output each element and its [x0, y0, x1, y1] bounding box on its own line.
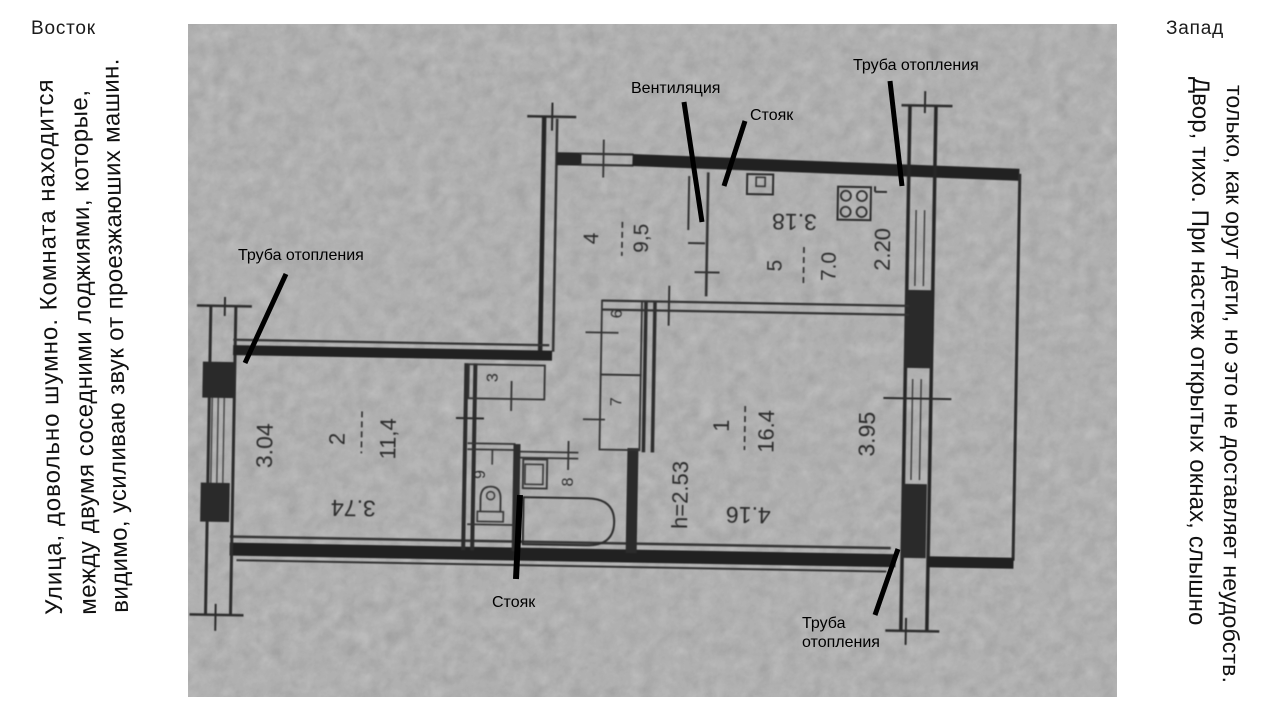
svg-text:h=2.53: h=2.53: [667, 461, 693, 529]
svg-text:4.16: 4.16: [726, 502, 771, 529]
svg-text:3.18: 3.18: [772, 208, 817, 235]
svg-text:1: 1: [709, 419, 734, 432]
svg-text:3.04: 3.04: [251, 423, 278, 468]
svg-text:11,4: 11,4: [375, 418, 401, 460]
svg-text:4: 4: [580, 232, 603, 244]
svg-text:отопления: отопления: [802, 634, 880, 651]
svg-text:9: 9: [472, 470, 489, 479]
svg-text:6: 6: [609, 309, 626, 318]
svg-text:Стояк: Стояк: [750, 107, 794, 124]
svg-text:Труба отопления: Труба отопления: [238, 247, 364, 264]
svg-text:2.20: 2.20: [870, 228, 896, 271]
svg-text:7.0: 7.0: [817, 252, 841, 282]
svg-text:3.74: 3.74: [331, 495, 376, 522]
svg-text:8: 8: [560, 477, 577, 486]
svg-text:3: 3: [485, 373, 502, 382]
svg-text:16.4: 16.4: [753, 410, 779, 453]
svg-text:3.95: 3.95: [853, 412, 880, 457]
svg-text:Стояк: Стояк: [492, 594, 536, 611]
svg-text:Труба: Труба: [802, 615, 846, 632]
svg-text:9,5: 9,5: [630, 223, 654, 253]
svg-text:Вентиляция: Вентиляция: [631, 80, 720, 97]
svg-text:Труба отопления: Труба отопления: [853, 57, 979, 74]
svg-text:7: 7: [608, 397, 625, 406]
svg-text:2: 2: [324, 433, 349, 446]
svg-text:5: 5: [764, 260, 787, 272]
